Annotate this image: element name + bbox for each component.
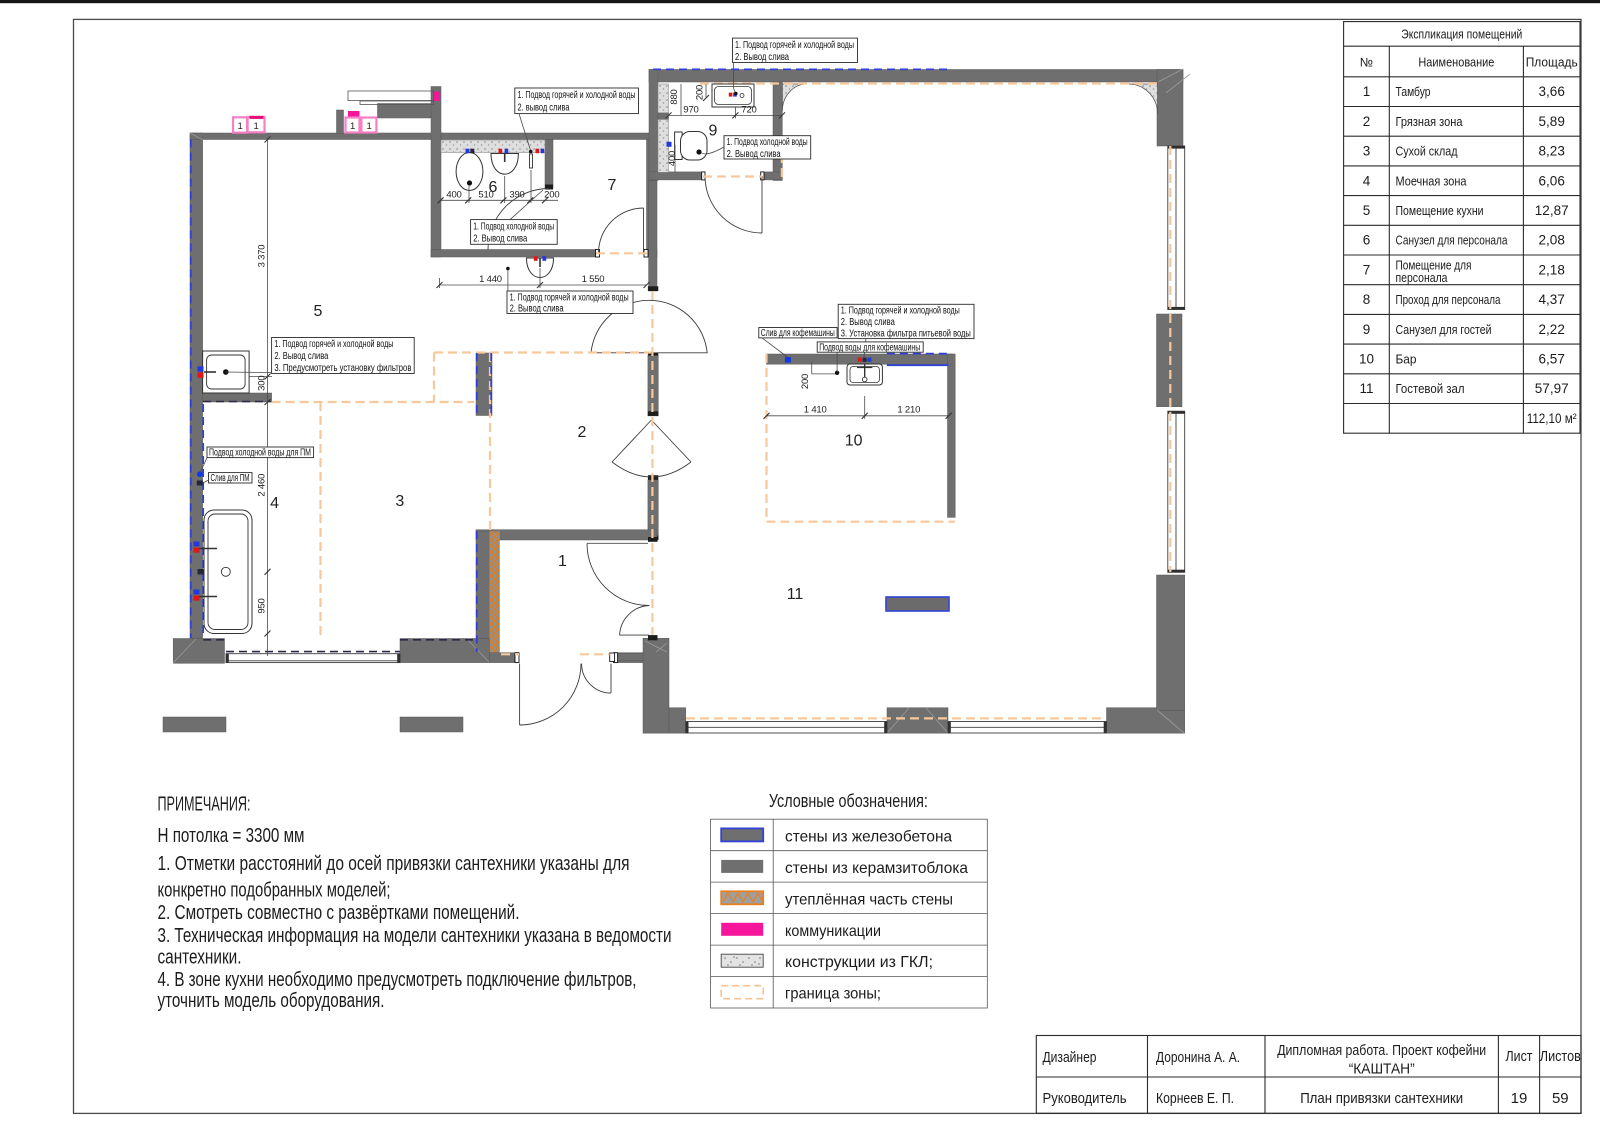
svg-text:2. Вывод слива: 2. Вывод слива: [841, 317, 895, 328]
svg-text:План привязки сантехники: План привязки сантехники: [1300, 1090, 1463, 1107]
svg-text:1: 1: [366, 121, 371, 132]
svg-text:стены из керамзитоблока: стены из керамзитоблока: [785, 860, 968, 877]
svg-text:2. Вывод слива: 2. Вывод слива: [727, 149, 781, 160]
svg-text:19: 19: [1511, 1090, 1528, 1107]
svg-text:Слив для кофемашины: Слив для кофемашины: [761, 327, 835, 339]
svg-text:1: 1: [1363, 84, 1371, 99]
svg-text:Подвод холодной воды для ПМ: Подвод холодной воды для ПМ: [209, 448, 311, 459]
svg-text:Экспликация помещений: Экспликация помещений: [1401, 28, 1522, 42]
svg-text:4: 4: [1363, 173, 1371, 188]
svg-text:1 210: 1 210: [897, 404, 920, 415]
svg-text:Моечная зона: Моечная зона: [1396, 173, 1468, 188]
svg-text:1. Подвод горячей и холодной в: 1. Подвод горячей и холодной воды: [510, 293, 629, 304]
svg-text:1: 1: [253, 121, 258, 132]
svg-text:400: 400: [446, 190, 461, 201]
svg-text:1. Подвод горячей и холодной в: 1. Подвод горячей и холодной воды: [274, 339, 393, 350]
svg-text:2. Вывод слива: 2. Вывод слива: [510, 304, 564, 315]
svg-text:1. Подвод холодной воды: 1. Подвод холодной воды: [727, 137, 808, 148]
svg-text:4,37: 4,37: [1539, 292, 1565, 307]
svg-text:Бар: Бар: [1396, 352, 1417, 367]
svg-text:1 410: 1 410: [804, 404, 827, 415]
svg-text:Санузел для персонала: Санузел для персонала: [1396, 233, 1509, 248]
svg-text:утеплённая часть стены: утеплённая часть стены: [785, 891, 953, 908]
svg-text:Листов: Листов: [1540, 1048, 1581, 1065]
svg-text:Дизайнер: Дизайнер: [1043, 1049, 1097, 1066]
svg-text:Тамбур: Тамбур: [1396, 84, 1431, 99]
svg-text:7: 7: [608, 177, 617, 194]
svg-text:3,66: 3,66: [1539, 84, 1565, 99]
svg-text:Подвод воды для кофемашины: Подвод воды для кофемашины: [819, 341, 920, 353]
svg-text:Площадь: Площадь: [1526, 56, 1578, 70]
svg-text:1 440: 1 440: [479, 274, 502, 285]
svg-text:880: 880: [669, 89, 680, 104]
svg-text:3: 3: [1363, 144, 1371, 159]
svg-text:10: 10: [1359, 352, 1374, 367]
svg-text:300: 300: [257, 376, 268, 391]
svg-text:1: 1: [350, 121, 355, 132]
svg-text:граница зоны;: граница зоны;: [785, 986, 881, 1003]
svg-text:9: 9: [1363, 322, 1371, 337]
svg-text:2: 2: [1363, 114, 1371, 129]
svg-text:1. Подвод горячей и холодной в: 1. Подвод горячей и холодной воды: [518, 90, 636, 101]
svg-text:3. Техническая информация на м: 3. Техническая информация на модели сант…: [158, 925, 672, 947]
svg-text:Н потолка = 3300 мм: Н потолка = 3300 мм: [158, 825, 305, 847]
svg-text:конструкции из ГКЛ;: конструкции из ГКЛ;: [785, 954, 933, 971]
svg-text:10: 10: [845, 433, 863, 450]
svg-text:Наименование: Наименование: [1418, 56, 1494, 70]
svg-text:2. Вывод слива: 2. Вывод слива: [274, 351, 328, 362]
svg-text:1 550: 1 550: [582, 274, 605, 285]
svg-text:Сухой склад: Сухой склад: [1396, 144, 1458, 159]
svg-text:2,22: 2,22: [1539, 322, 1565, 337]
svg-text:2. Смотреть совместно с развёр: 2. Смотреть совместно с развёртками поме…: [158, 902, 520, 924]
svg-text:200: 200: [695, 85, 706, 100]
svg-text:Корнеев Е. П.: Корнеев Е. П.: [1156, 1090, 1234, 1107]
svg-text:6: 6: [489, 179, 498, 196]
svg-text:3. Предусмотреть установку фил: 3. Предусмотреть установку фильтров: [274, 362, 411, 374]
svg-text:12,87: 12,87: [1535, 203, 1569, 218]
svg-text:4: 4: [270, 495, 279, 512]
svg-text:200: 200: [800, 374, 811, 389]
svg-text:“КАШТАН”: “КАШТАН”: [1349, 1061, 1415, 1078]
svg-text:11: 11: [787, 586, 804, 603]
svg-text:8: 8: [1363, 292, 1371, 307]
svg-text:№: №: [1360, 56, 1373, 70]
svg-text:Лист: Лист: [1506, 1048, 1533, 1065]
svg-text:1: 1: [558, 553, 567, 570]
svg-text:112,10 м²: 112,10 м²: [1527, 411, 1577, 426]
svg-text:Санузел для гостей: Санузел для гостей: [1396, 322, 1492, 337]
svg-text:720: 720: [741, 104, 756, 115]
svg-text:950: 950: [257, 598, 268, 613]
svg-text:2 460: 2 460: [257, 474, 268, 497]
svg-text:персонала: персонала: [1396, 270, 1449, 285]
svg-text:ПРИМЕЧАНИЯ:: ПРИМЕЧАНИЯ:: [158, 794, 251, 816]
svg-text:1. Подвод горячей и холодной в: 1. Подвод горячей и холодной воды: [841, 306, 960, 317]
svg-text:Руководитель: Руководитель: [1043, 1090, 1127, 1107]
svg-text:5,89: 5,89: [1539, 114, 1565, 129]
svg-text:1. Подвод холодной воды: 1. Подвод холодной воды: [473, 221, 554, 232]
svg-text:970: 970: [683, 104, 698, 115]
svg-text:5: 5: [314, 303, 323, 320]
svg-text:8,23: 8,23: [1539, 144, 1565, 159]
svg-text:3: 3: [395, 493, 404, 510]
svg-text:5: 5: [1363, 203, 1371, 218]
svg-text:стены из железобетона: стены из железобетона: [785, 828, 952, 845]
svg-text:6: 6: [1363, 233, 1371, 248]
svg-text:2. Вывод слива: 2. Вывод слива: [473, 234, 527, 245]
svg-text:Условные обозначения:: Условные обозначения:: [769, 791, 928, 811]
svg-text:2. вывод слива: 2. вывод слива: [518, 103, 570, 114]
svg-text:200: 200: [544, 190, 559, 201]
svg-text:2,08: 2,08: [1539, 233, 1565, 248]
svg-text:6,57: 6,57: [1539, 352, 1565, 367]
svg-text:1. Подвод горячей и холодной в: 1. Подвод горячей и холодной воды: [735, 40, 854, 51]
svg-text:4. В зоне кухни необходимо пре: 4. В зоне кухни необходимо предусмотреть…: [158, 969, 637, 991]
svg-text:59: 59: [1552, 1090, 1569, 1107]
svg-text:Дипломная работа. Проект кофей: Дипломная работа. Проект кофейни: [1277, 1042, 1486, 1059]
svg-text:6,06: 6,06: [1539, 173, 1565, 188]
svg-text:57,97: 57,97: [1535, 381, 1569, 396]
svg-text:9: 9: [709, 123, 718, 140]
svg-text:1. Отметки расстояний до осей: 1. Отметки расстояний до осей привязки с…: [158, 853, 630, 875]
svg-text:2: 2: [578, 424, 587, 441]
svg-text:11: 11: [1359, 381, 1373, 396]
svg-text:390: 390: [509, 190, 524, 201]
svg-text:2. Вывод слива: 2. Вывод слива: [735, 52, 789, 63]
svg-text:7: 7: [1363, 262, 1371, 277]
svg-text:конкретно подобранных моделей;: конкретно подобранных моделей;: [158, 880, 391, 902]
svg-text:Грязная зона: Грязная зона: [1396, 114, 1464, 129]
svg-text:коммуникации: коммуникации: [785, 923, 881, 940]
svg-text:Помещение кухни: Помещение кухни: [1396, 203, 1484, 218]
svg-text:Доронина А. А.: Доронина А. А.: [1156, 1049, 1240, 1066]
svg-text:1: 1: [237, 121, 242, 132]
svg-text:Гостевой зал: Гостевой зал: [1396, 381, 1465, 396]
svg-text:2,18: 2,18: [1539, 262, 1565, 277]
svg-text:Проход для персонала: Проход для персонала: [1396, 292, 1502, 307]
svg-text:сантехники.: сантехники.: [158, 947, 242, 969]
svg-text:Слив для ПМ: Слив для ПМ: [211, 473, 250, 484]
svg-text:3. Установка фильтра питьевой: 3. Установка фильтра питьевой воды: [841, 327, 971, 339]
svg-text:400: 400: [667, 151, 678, 166]
svg-text:3 370: 3 370: [257, 245, 268, 268]
svg-text:уточнить модель оборудования.: уточнить модель оборудования.: [158, 990, 385, 1012]
